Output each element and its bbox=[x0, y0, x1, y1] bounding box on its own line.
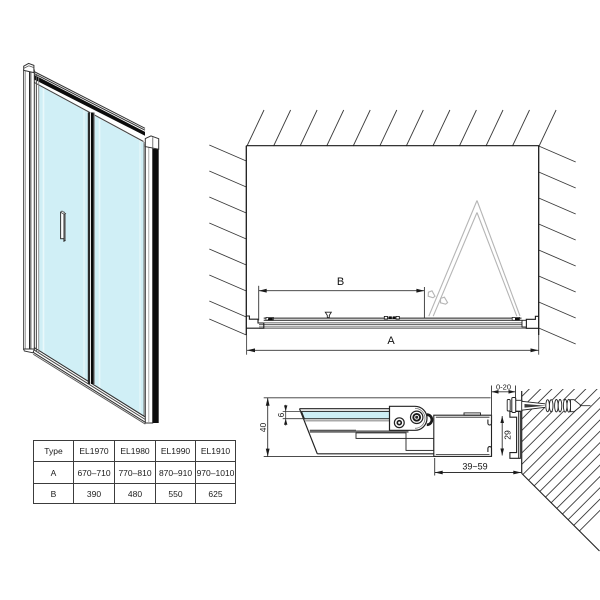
svg-text:39~59: 39~59 bbox=[462, 461, 487, 471]
svg-text:0-20: 0-20 bbox=[496, 383, 511, 392]
svg-text:6: 6 bbox=[277, 412, 286, 417]
svg-text:B: B bbox=[337, 276, 344, 288]
svg-text:29: 29 bbox=[503, 430, 513, 440]
svg-text:40: 40 bbox=[258, 423, 268, 433]
svg-text:A: A bbox=[387, 335, 395, 347]
